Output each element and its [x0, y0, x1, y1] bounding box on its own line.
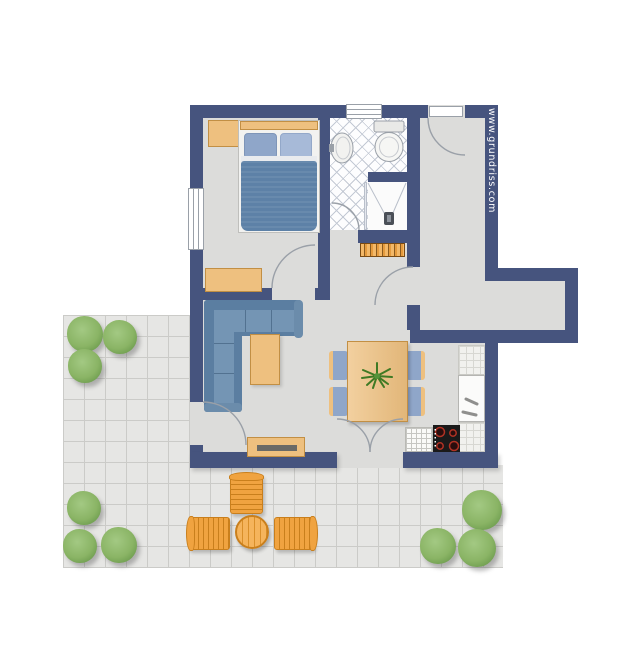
dining-chair-1 [329, 351, 348, 380]
bathroom-window [346, 104, 382, 119]
terrace-door-threshold [190, 402, 203, 445]
wall-hall-stub-b [407, 305, 420, 330]
corridor-floor [485, 281, 565, 330]
dresser [205, 268, 262, 292]
kitchen-sink [458, 375, 485, 422]
outdoor-chair-top-backrest [229, 472, 264, 481]
kitchen-counter-bottom [458, 422, 485, 452]
kitchen-drainer [405, 427, 433, 452]
watermark: www.grundriss.com [485, 108, 498, 258]
shrub-tl-3 [68, 349, 102, 383]
sofa-cushions-left [214, 310, 234, 404]
wall-left-a [190, 105, 203, 188]
outdoor-chair-right-backrest [309, 516, 318, 551]
shower-glass [364, 182, 367, 230]
coffee-table [250, 334, 280, 385]
wall-top-a [190, 105, 346, 118]
dining-chair-3 [406, 351, 425, 380]
cooktop [433, 425, 460, 452]
radiator [360, 243, 405, 257]
dining-table [347, 341, 408, 422]
bed-headboard [240, 121, 318, 130]
sofa-armrest-right [294, 300, 303, 338]
shrub-br-2 [420, 528, 456, 564]
dining-chair-2 [329, 387, 348, 416]
outdoor-chair-left-backrest [186, 516, 195, 551]
wall-bedroom-south-b [315, 288, 330, 300]
shower-floor [368, 182, 407, 230]
tv-lowboard-slot [257, 445, 297, 451]
shrub-bl-1 [67, 491, 101, 525]
outdoor-chair-right [274, 517, 314, 550]
wall-hall-stub-a [407, 243, 420, 267]
nightstand [208, 120, 240, 147]
shrub-bl-2 [63, 529, 97, 563]
sofa-armrest-bottom [204, 403, 242, 412]
wall-left-b [190, 250, 203, 402]
bedroom-window [188, 188, 204, 250]
dining-chair-4 [406, 387, 425, 416]
shrub-tl-1 [67, 316, 103, 352]
outdoor-table [235, 515, 269, 549]
outdoor-chair-left [188, 517, 230, 550]
wall-top-b [382, 105, 428, 118]
wall-right-lower [485, 330, 498, 468]
french-door-threshold [337, 452, 403, 468]
shrub-bl-3 [101, 527, 137, 563]
entrance-door-leaf [429, 106, 463, 117]
outdoor-chair-top [230, 474, 263, 514]
kitchen-counter-top [458, 345, 485, 375]
wall-bottom-b [403, 452, 498, 468]
shrub-br-1 [462, 490, 502, 530]
shrub-tl-2 [103, 320, 137, 354]
shrub-br-3 [458, 529, 496, 567]
wall-shower [368, 172, 420, 182]
floor-plan: www.grundriss.com [0, 0, 640, 657]
bed-blanket [241, 161, 317, 231]
